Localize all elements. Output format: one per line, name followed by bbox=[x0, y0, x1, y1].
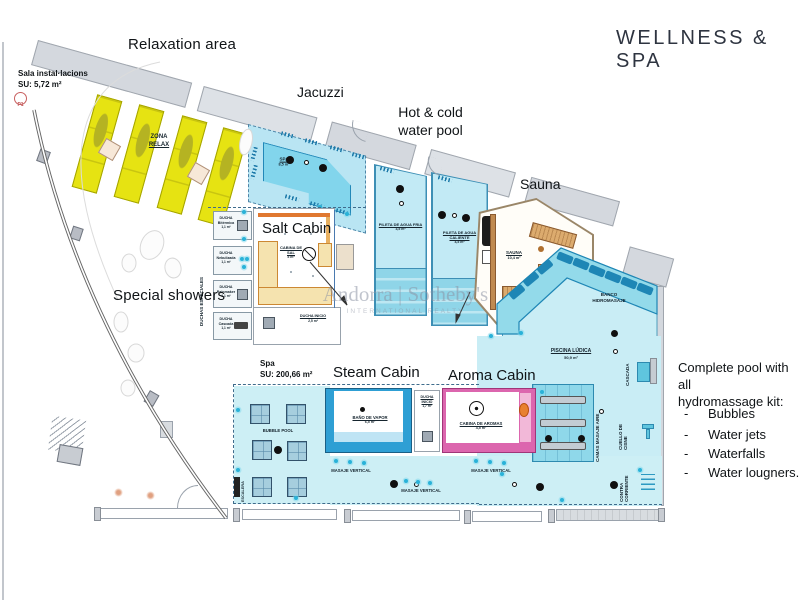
massage-bed-slab bbox=[540, 442, 586, 450]
shower-tray bbox=[263, 317, 275, 329]
ducha-inicio-label: DUCHA INICIO 2,5 m² bbox=[296, 314, 330, 323]
water-marker bbox=[638, 468, 642, 472]
steam-room-label: BAÑO DE VAPOR 6,5 m² bbox=[346, 415, 394, 425]
aroma-cabin-floor bbox=[446, 392, 519, 443]
jet-ring bbox=[304, 160, 309, 165]
kit-dash: - bbox=[684, 427, 688, 442]
jet-dot bbox=[462, 214, 470, 222]
aroma-bowl bbox=[519, 403, 529, 417]
salt-zone-right-wall bbox=[334, 210, 335, 308]
shower-cell-cascada: DUCHACascada1,1 m² bbox=[213, 312, 252, 340]
bottom-wall bbox=[100, 508, 228, 519]
cascada-label: CASCADA bbox=[626, 354, 631, 386]
ducha-inicio-label-2: DUCHA INICIO 1,7 m² bbox=[416, 395, 438, 409]
wall-post bbox=[69, 226, 83, 242]
floor-dot bbox=[312, 275, 314, 277]
aroma-fan bbox=[469, 401, 484, 416]
jet-ring bbox=[613, 349, 618, 354]
aroma-room-label: CABINA DE AROMAS 4,5 m² bbox=[451, 421, 511, 431]
swan-neck-stem bbox=[646, 429, 650, 439]
wall-post bbox=[36, 149, 51, 165]
jet-dot bbox=[610, 481, 618, 489]
kit-item: - Waterfalls bbox=[684, 446, 688, 461]
water-marker bbox=[362, 461, 366, 465]
water-marker bbox=[348, 460, 352, 464]
shower-cell-bitermica: DUCHABitérmica1,1 m² bbox=[213, 211, 252, 240]
pool-steps bbox=[376, 268, 426, 315]
banco-label: BANCO HIDROMASAJE bbox=[588, 292, 630, 304]
salt-bench bbox=[318, 243, 332, 267]
heated-wall-strip bbox=[258, 213, 330, 217]
bottom-wall bbox=[352, 510, 460, 521]
cuello-cisne-label: CUELLO DE CISNE bbox=[619, 414, 629, 450]
steam-cabin-bench bbox=[334, 432, 403, 442]
jet-ring bbox=[452, 213, 457, 218]
water-marker bbox=[242, 210, 246, 214]
bubble-seat bbox=[252, 477, 272, 497]
page-title: WELLNESS & SPA bbox=[616, 27, 800, 73]
jacuzzi-label: Jacuzzi bbox=[297, 84, 344, 100]
counter-current-feature bbox=[641, 474, 655, 490]
duchas-especiales-label: DUCHAS ESPECIALES bbox=[200, 242, 205, 326]
jet-dot bbox=[536, 483, 544, 491]
salt-cabin-heading: Salt Cabin bbox=[262, 220, 331, 237]
shower-cell-nebulizada: DUCHANebulizada1,1 m² bbox=[213, 246, 252, 275]
shower-tray bbox=[422, 431, 433, 442]
kit-note: Complete pool with all hydromassage kit: bbox=[678, 360, 798, 411]
aroma-cabin-band bbox=[520, 393, 531, 442]
planter-dot bbox=[114, 488, 123, 497]
water-marker bbox=[540, 390, 544, 394]
water-marker bbox=[236, 468, 240, 472]
aroma-cabin-room: CABINA DE AROMAS 4,5 m² bbox=[442, 388, 536, 453]
utility-box bbox=[57, 444, 84, 466]
jet-dot bbox=[390, 480, 398, 488]
bubble-jet bbox=[274, 446, 282, 454]
floorplan-canvas: ZONA RELAX SPA 8,5 m² PILETA DE AGUA FRI… bbox=[0, 0, 800, 600]
bubble-pool-label: BUBBLE POOL bbox=[255, 428, 301, 433]
p1-marker: P1 bbox=[14, 92, 27, 105]
column bbox=[233, 508, 240, 522]
kit-dash: - bbox=[684, 446, 688, 461]
water-marker bbox=[488, 460, 492, 464]
air-massage-beds bbox=[532, 384, 594, 462]
kit-item: - Water lougners... bbox=[684, 465, 688, 480]
round-table bbox=[302, 247, 316, 261]
wall-post bbox=[143, 390, 159, 407]
massage-bed-slab bbox=[540, 396, 586, 404]
kit-item: - Bubbles bbox=[684, 406, 688, 421]
jet-dot bbox=[438, 211, 446, 219]
salt-bench bbox=[258, 287, 332, 305]
jet-ring bbox=[599, 409, 604, 414]
ducha-inicio-room: DUCHA INICIO 2,5 m² bbox=[253, 307, 341, 345]
steam-nozzle bbox=[360, 407, 365, 412]
jet-ring bbox=[399, 201, 404, 206]
bottom-wall bbox=[472, 511, 542, 522]
bottom-wall-hatched bbox=[556, 509, 662, 521]
salt-niche bbox=[336, 244, 354, 270]
spa-su-note: Spa SU: 200,66 m² bbox=[260, 358, 312, 380]
sala-instalacions-note: Sala instal·lacions SU: 5,72 m² bbox=[18, 68, 88, 90]
sauna-label: Sauna bbox=[520, 176, 560, 192]
jet-ring bbox=[512, 482, 517, 487]
aroma-cabin-heading: Aroma Cabin bbox=[448, 367, 536, 384]
water-marker bbox=[404, 479, 408, 483]
bubble-seat bbox=[252, 440, 272, 460]
masaje-vertical-label: MASAJE VERTICAL bbox=[398, 488, 444, 493]
mist-marker bbox=[242, 265, 246, 269]
water-marker bbox=[334, 459, 338, 463]
steam-cabin-room: BAÑO DE VAPOR 6,5 m² bbox=[325, 388, 412, 453]
pool-dashed-boundary bbox=[479, 504, 662, 505]
waterfall-feature bbox=[637, 362, 650, 382]
cold-pool-label: PILETA DE AGUA FRIA 3,5 m² bbox=[378, 222, 423, 232]
jet-dot bbox=[578, 435, 585, 442]
stair-strip bbox=[234, 477, 240, 497]
piscina-ludica-label: PISCINA LÚDICA 50,9 m² bbox=[548, 348, 594, 360]
escalera-label: ESCALERA bbox=[241, 476, 245, 502]
page-edge-line bbox=[2, 42, 4, 600]
cascade-bar bbox=[234, 322, 248, 329]
ducha-inicio-room-2: DUCHA INICIO 1,7 m² bbox=[414, 390, 440, 452]
hydromassage-bench-pool bbox=[473, 238, 665, 340]
hot-cold-pool-label: Hot & cold water pool bbox=[378, 103, 483, 139]
camas-masaje-label: CAMAS MASAJE AIRE bbox=[596, 390, 601, 462]
kit-item: - Water jets bbox=[684, 427, 688, 442]
shower-tray bbox=[237, 289, 248, 300]
kit-dash: - bbox=[684, 465, 688, 480]
steam-cabin-heading: Steam Cabin bbox=[333, 364, 420, 381]
jet-dot bbox=[545, 435, 552, 442]
water-marker bbox=[560, 498, 564, 502]
water-marker bbox=[428, 481, 432, 485]
jet-dot bbox=[286, 156, 294, 164]
jet-dot bbox=[396, 185, 404, 193]
column bbox=[344, 509, 351, 523]
shower-tray bbox=[237, 220, 248, 231]
water-marker bbox=[345, 212, 349, 216]
water-marker bbox=[502, 461, 506, 465]
jet-dot bbox=[319, 164, 327, 172]
bubble-seat bbox=[287, 477, 307, 497]
bubble-seat bbox=[250, 404, 270, 424]
zona-relax-label: ZONA RELAX bbox=[146, 134, 172, 150]
massage-bed-slab bbox=[540, 419, 586, 427]
jet-dot bbox=[611, 330, 618, 337]
column bbox=[94, 507, 101, 521]
floor-dot bbox=[290, 271, 292, 273]
mist-marker bbox=[240, 257, 244, 261]
water-marker bbox=[489, 334, 493, 338]
water-marker bbox=[242, 237, 246, 241]
water-marker bbox=[474, 459, 478, 463]
water-marker bbox=[236, 408, 240, 412]
contra-corriente-label: CONTRA CORRIENTE bbox=[620, 466, 630, 502]
water-marker bbox=[519, 331, 523, 335]
mist-marker bbox=[245, 257, 249, 261]
spa-pool-basin bbox=[263, 142, 351, 216]
water-marker bbox=[416, 480, 420, 484]
planter-dot bbox=[146, 491, 155, 500]
water-marker bbox=[294, 496, 298, 500]
special-showers-label: Special showers bbox=[113, 287, 225, 304]
salt-room-label: CABINA DE SAL 5 m² bbox=[278, 245, 304, 260]
masaje-vertical-label: MASAJE VERTICAL bbox=[468, 468, 514, 473]
bubble-seat bbox=[286, 404, 306, 424]
relax-lounger bbox=[114, 104, 165, 203]
masaje-vertical-label: MASAJE VERTICAL bbox=[328, 468, 374, 473]
column bbox=[464, 510, 471, 524]
bubble-seat bbox=[287, 441, 307, 461]
door-arc bbox=[177, 485, 198, 508]
relaxation-area-label: Relaxation area bbox=[128, 36, 236, 53]
waterfall-cap bbox=[650, 358, 657, 384]
column bbox=[658, 508, 665, 522]
column bbox=[548, 509, 555, 523]
bottom-wall bbox=[242, 509, 337, 520]
kit-dash: - bbox=[684, 406, 688, 421]
utility-box bbox=[160, 421, 173, 438]
